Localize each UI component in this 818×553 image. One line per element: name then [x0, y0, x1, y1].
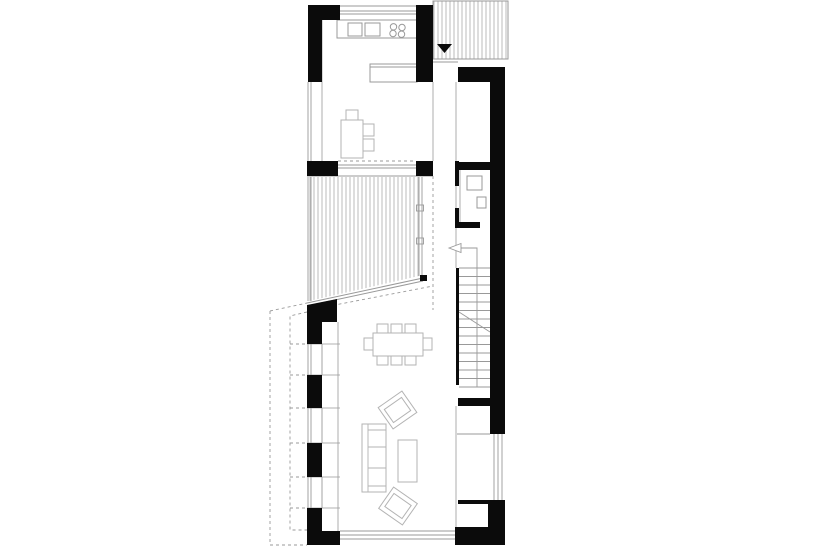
cooktop-burner-4 [398, 31, 404, 37]
setback-dashed-outline [290, 312, 307, 530]
wall-west-segment-2 [307, 375, 322, 408]
wall-southwest-corner [307, 508, 340, 545]
deck-corner-marker [420, 275, 427, 281]
cooktop-burner-3 [390, 30, 396, 36]
kitchen-sink-right [365, 23, 380, 36]
kitchen-sink-left [348, 23, 362, 36]
wall-northwest-corner [308, 5, 340, 82]
kitchen-north-window-glazing [340, 11, 416, 14]
west-window-bay-2 [308, 408, 322, 443]
deck-edge-upper [307, 278, 423, 303]
armchair-north [378, 391, 417, 429]
floor-plan-drawing [0, 0, 818, 553]
cooktop-burner-1 [390, 24, 396, 30]
armchair-south [379, 487, 418, 525]
wall-west-segment-3 [307, 443, 322, 477]
dining-table [373, 333, 423, 356]
wall-kitchen-band-west [307, 161, 338, 176]
wall-wc-north [459, 162, 490, 170]
dining-chair-n2 [391, 324, 402, 333]
wall-stair-south [458, 398, 490, 406]
east-window-glazing [494, 434, 502, 500]
lower-floor-dashed-diagonal [270, 303, 307, 311]
wall-west-segment-1 [307, 299, 337, 344]
dining-chair-n3 [405, 324, 416, 333]
terrace-east-rail [419, 177, 422, 276]
dining-chair-s1 [377, 356, 388, 365]
stair-direction-arrow [449, 244, 461, 253]
dining-chair-n1 [377, 324, 388, 333]
wall-east-main [490, 82, 505, 434]
wc-basin [477, 197, 486, 208]
south-window-glazing [340, 531, 455, 539]
wall-entry-north [458, 67, 505, 82]
wall-southeast-corner [455, 527, 505, 545]
coffee-table [398, 440, 417, 482]
dining-chair-e [423, 338, 432, 350]
west-window-bay-3 [308, 477, 322, 508]
wall-north-pillar-east [416, 5, 433, 82]
wall-wc-south [455, 222, 480, 228]
wall-kitchen-band-east [416, 161, 433, 176]
west-window-bay-1 [308, 344, 322, 375]
desk-chair-north [346, 110, 358, 120]
stair-break-line [459, 312, 490, 332]
floor-plan-page [0, 0, 818, 553]
wc-toilet [467, 176, 482, 190]
kitchen-west-glazing [308, 82, 311, 161]
west-shelf-dividers [307, 344, 340, 508]
cooktop-burner-2 [399, 24, 405, 30]
terrace-west-rail [308, 177, 311, 301]
desk [341, 120, 363, 158]
wall-stair-west [456, 268, 459, 385]
dining-chair-s2 [391, 356, 402, 365]
wall-wc-west-upper [455, 161, 459, 186]
sofa [362, 424, 386, 492]
desk-chair-east-2 [363, 139, 374, 151]
rail-post-marker-2 [417, 238, 424, 244]
rail-post-marker-1 [417, 205, 424, 211]
wall-room-divider [458, 500, 488, 504]
stair-treads [459, 268, 490, 387]
desk-chair-east-1 [363, 124, 374, 136]
kitchen-band-glazing [338, 165, 416, 168]
dining-chair-w [364, 338, 373, 350]
dining-chair-s3 [405, 356, 416, 365]
